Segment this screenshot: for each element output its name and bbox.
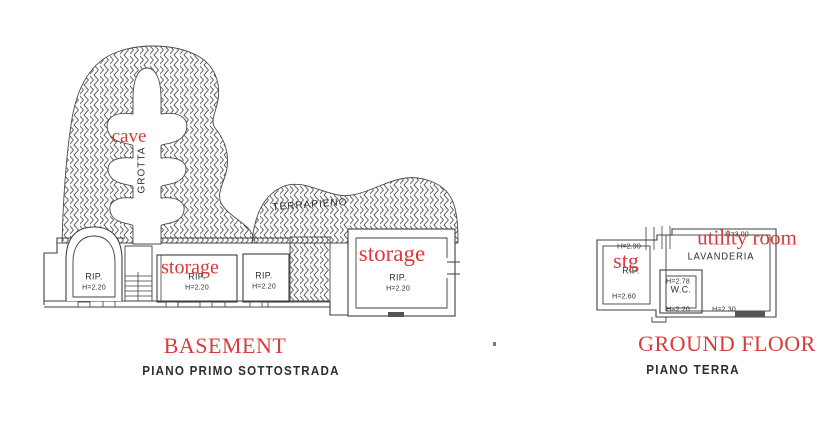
- earth-column-hatch: [290, 237, 330, 302]
- grotta-label: GROTTA: [137, 147, 148, 194]
- room1-name: RIP.: [85, 272, 103, 283]
- cave-annotation: cave: [112, 126, 147, 148]
- basement-title-en: BASEMENT: [164, 333, 287, 359]
- stray-dot: [493, 342, 496, 346]
- wc-height-bottom: H=2.20: [666, 305, 690, 314]
- utility-room-annotation: utility room: [697, 226, 797, 251]
- ground-floor-title-en: GROUND FLOOR: [638, 331, 816, 357]
- floor-plan-sheet: cave GROTTA TERRAPIENO RIP. H=2.20 stora…: [0, 0, 825, 434]
- room2-height: H=2.20: [185, 283, 209, 292]
- wc-room-name: W.C.: [671, 285, 692, 296]
- storage-annotation-small: storage: [161, 257, 219, 280]
- basement-title-it: PIANO PRIMO SOTTOSTRADA: [142, 364, 339, 378]
- room4-name: RIP.: [389, 273, 407, 284]
- ground-floor-title-it: PIANO TERRA: [646, 363, 739, 377]
- room4-height: H=2.20: [386, 284, 410, 293]
- stg-height-bottom: H=2.60: [612, 292, 636, 301]
- laundry-height-bottom-right: H=2.30: [712, 305, 736, 314]
- room3-name: RIP.: [255, 271, 273, 282]
- laundry-room-name: LAVANDERIA: [688, 252, 755, 263]
- stg-annotation: stg: [613, 248, 639, 274]
- room1-height: H=2.20: [82, 283, 106, 292]
- storage-annotation-large: storage: [359, 241, 425, 267]
- room3-height: H=2.20: [252, 282, 276, 291]
